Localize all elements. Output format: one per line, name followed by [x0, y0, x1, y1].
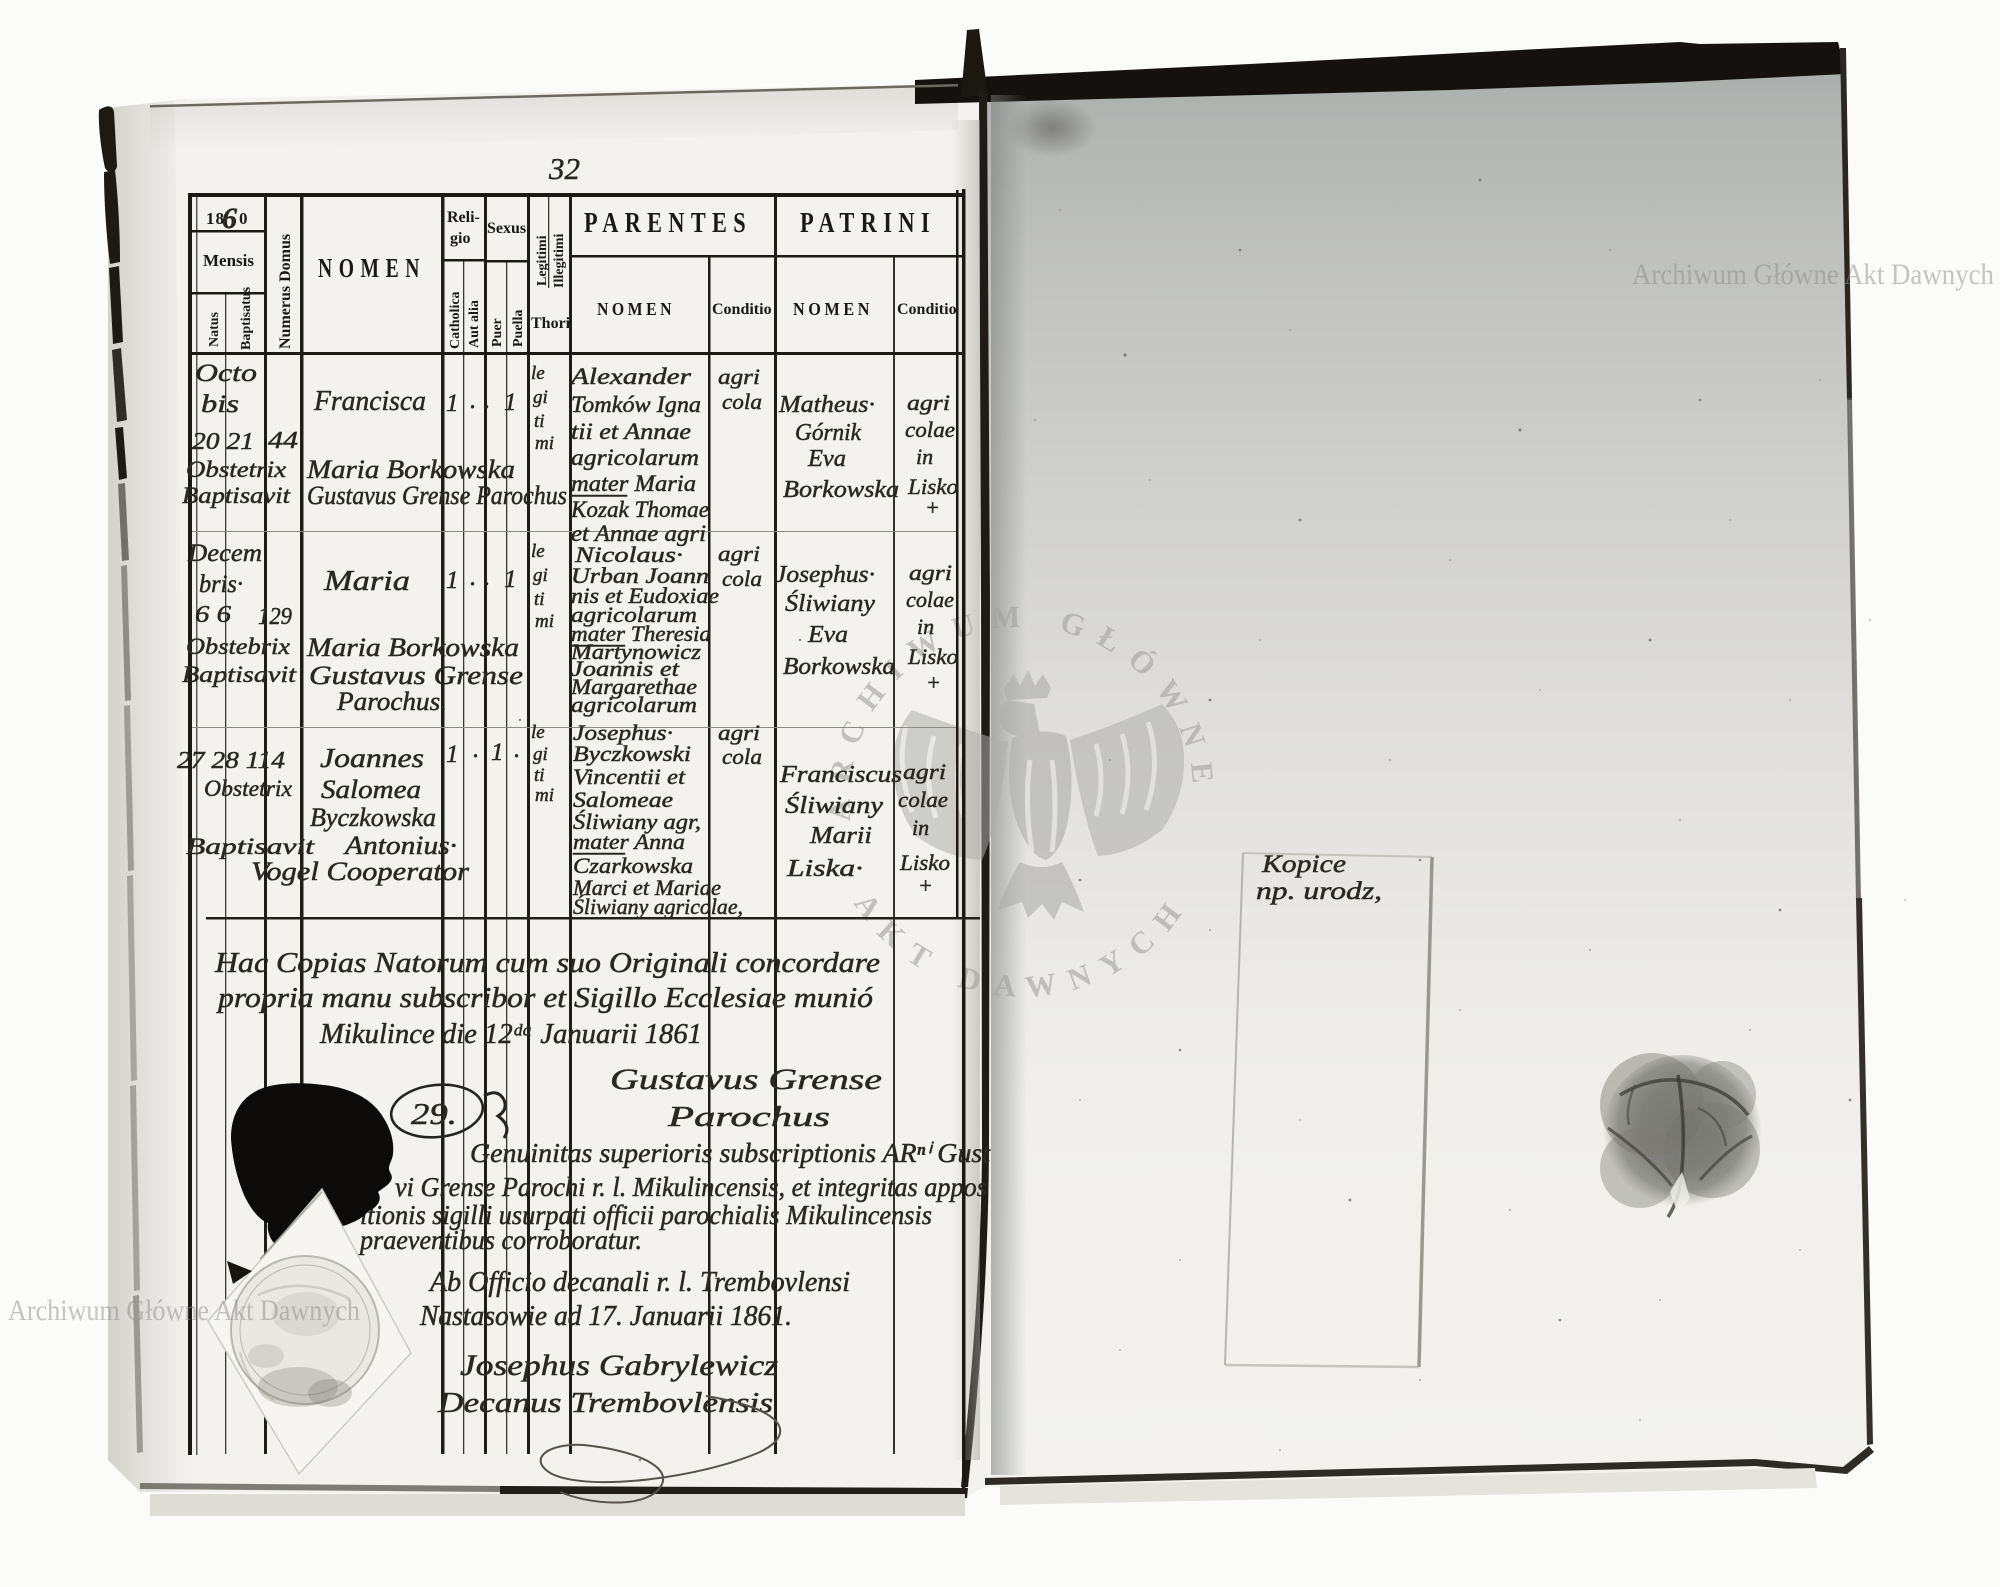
svg-text:Obstebrix: Obstebrix [186, 634, 291, 659]
svg-text:Gustavus Grense Parochus: Gustavus Grense Parochus [307, 481, 567, 510]
svg-text:agri: agri [903, 759, 946, 784]
svg-text:Josephus·: Josephus· [775, 562, 875, 588]
svg-text:Numerus Domus: Numerus Domus [277, 234, 294, 349]
svg-text:32: 32 [548, 151, 580, 186]
svg-text:Sexus: Sexus [487, 220, 526, 237]
svg-text:np. urodz,: np. urodz, [1256, 878, 1382, 905]
svg-text:.: . [470, 564, 476, 591]
svg-text:1: 1 [446, 741, 459, 768]
svg-text:mi: mi [535, 433, 554, 454]
svg-text:129: 129 [258, 604, 292, 630]
svg-text:Legitimi: Legitimi [535, 235, 550, 286]
svg-text:+: + [926, 670, 941, 695]
svg-text:.: . [484, 564, 490, 591]
svg-text:1: 1 [504, 566, 517, 593]
svg-text:colae: colae [898, 787, 948, 812]
svg-text:bis: bis [201, 391, 239, 418]
svg-text:Puella: Puella [511, 310, 526, 347]
svg-text:Obstetrix: Obstetrix [204, 776, 293, 801]
svg-text:Nastasowie ad 17. Januarii 186: Nastasowie ad 17. Januarii 1861. [419, 1301, 792, 1332]
svg-text:agri: agri [907, 390, 950, 415]
svg-text:gio: gio [450, 230, 470, 247]
svg-text:Parochus: Parochus [666, 1102, 830, 1133]
svg-text:0: 0 [239, 209, 248, 228]
svg-text:PARENTES: PARENTES [584, 208, 752, 239]
svg-text:Byczkowska: Byczkowska [310, 803, 436, 832]
svg-text:propria manu subscribor et Sig: propria manu subscribor et Sigillo Eccle… [216, 983, 873, 1014]
svg-text:Alexander: Alexander [568, 364, 692, 389]
svg-text:Maria Borkowska: Maria Borkowska [306, 455, 515, 484]
svg-text:Mikulince die 12ᵈᵃ Januarii 18: Mikulince die 12ᵈᵃ Januarii 1861 [319, 1019, 702, 1050]
svg-text:Puer: Puer [490, 318, 505, 347]
svg-text:Kopice: Kopice [1261, 851, 1346, 878]
svg-text:ti: ti [534, 765, 545, 786]
svg-text:in: in [912, 815, 929, 840]
svg-text:Aut alia: Aut alia [467, 300, 482, 348]
svg-text:Lisko: Lisko [899, 850, 950, 875]
svg-text:44: 44 [268, 428, 298, 454]
svg-text:tii et Annae: tii et Annae [571, 419, 691, 444]
svg-text:ti: ti [534, 411, 545, 432]
svg-text:gi: gi [533, 744, 548, 765]
svg-text:.: . [473, 736, 479, 763]
svg-text:in: in [916, 444, 933, 469]
svg-text:27 28 114: 27 28 114 [177, 748, 285, 774]
svg-text:Marii: Marii [809, 823, 872, 849]
svg-text:Josephus Gabrylewicz: Josephus Gabrylewicz [460, 1349, 778, 1382]
svg-text:Decem: Decem [187, 540, 262, 567]
svg-text:20 21: 20 21 [192, 429, 254, 455]
svg-text:agri: agri [909, 560, 952, 585]
svg-text:mi: mi [535, 785, 554, 806]
svg-text:+: + [918, 873, 933, 898]
svg-text:Eva: Eva [807, 622, 848, 648]
svg-text:Mensis: Mensis [203, 251, 254, 270]
svg-text:29.: 29. [411, 1096, 457, 1131]
svg-text:le: le [531, 363, 545, 384]
svg-text:Illegitimi: Illegitimi [552, 233, 567, 288]
svg-text:Genuinitas superioris subscrip: Genuinitas superioris subscriptionis ARⁿ… [470, 1138, 992, 1168]
svg-text:cola: cola [722, 744, 762, 769]
svg-text:Obstetrix: Obstetrix [186, 457, 287, 482]
svg-text:gi: gi [533, 387, 548, 408]
svg-text:praeventibus corroboratur.: praeventibus corroboratur. [358, 1225, 642, 1255]
svg-text:.: . [484, 387, 490, 414]
svg-text:colae: colae [906, 587, 954, 612]
svg-text:Maria: Maria [323, 565, 410, 597]
svg-text:Byczkowski: Byczkowski [573, 741, 691, 766]
svg-text:PATRINI: PATRINI [800, 208, 936, 239]
svg-text:agricolarum: agricolarum [571, 445, 699, 470]
svg-text:Thori: Thori [531, 315, 571, 332]
svg-text:Baptisavit: Baptisavit [186, 834, 315, 859]
svg-text:Borkowska: Borkowska [783, 654, 895, 680]
svg-text:colae: colae [905, 417, 955, 442]
svg-text:Catholica: Catholica [448, 291, 463, 349]
svg-text:Franciscus: Franciscus [779, 762, 902, 788]
svg-text:Eva: Eva [807, 446, 846, 472]
svg-text:1: 1 [446, 390, 459, 417]
svg-text:Matheus·: Matheus· [778, 392, 875, 418]
svg-text:6 6: 6 6 [195, 602, 231, 628]
svg-text:Decanus Trembovlensis: Decanus Trembovlensis [437, 1387, 773, 1419]
svg-text:le: le [531, 722, 545, 743]
svg-text:Górnik: Górnik [795, 420, 861, 446]
svg-text:le: le [531, 541, 545, 562]
svg-text:NOMEN: NOMEN [597, 299, 675, 319]
svg-text:+: + [925, 495, 940, 520]
svg-text:Maria Borkowska: Maria Borkowska [306, 633, 519, 662]
svg-text:ti: ti [534, 589, 545, 610]
svg-text:Octo: Octo [195, 360, 257, 387]
svg-text:NOMEN: NOMEN [318, 253, 426, 283]
svg-text:6: 6 [222, 202, 237, 235]
svg-text:vi Grense Parochi r. l. Mikuli: vi Grense Parochi r. l. Mikulincensis, e… [395, 1172, 987, 1202]
svg-text:Lisko: Lisko [907, 644, 958, 669]
svg-text:mater Anna: mater Anna [573, 829, 685, 854]
svg-text:Śliwiany: Śliwiany [785, 792, 883, 819]
svg-text:Kozak Thomae: Kozak Thomae [570, 497, 709, 522]
svg-text:Joannes: Joannes [320, 743, 424, 773]
svg-text:Śliwiany: Śliwiany [785, 590, 875, 617]
svg-text:gi: gi [533, 565, 548, 586]
svg-text:Conditio: Conditio [897, 301, 957, 318]
svg-text:Conditio: Conditio [712, 301, 772, 318]
svg-text:Reli-: Reli- [447, 209, 480, 226]
svg-text:Baptisavit: Baptisavit [182, 662, 297, 687]
svg-text:bris·: bris· [199, 571, 243, 598]
svg-text:Salomea: Salomea [321, 775, 421, 804]
svg-text:Ab Officio decanali r. l. Trem: Ab Officio decanali r. l. Trembovlensi [428, 1267, 850, 1298]
svg-text:Śliwiany agricolae,: Śliwiany agricolae, [573, 894, 743, 919]
svg-text:cola: cola [722, 389, 762, 414]
svg-text:Vincentii et: Vincentii et [573, 764, 686, 789]
svg-text:agri: agri [718, 541, 760, 566]
svg-text:cola: cola [722, 566, 762, 591]
svg-text:.: . [470, 387, 476, 414]
svg-text:Archiwum Główne Akt Dawnych: Archiwum Główne Akt Dawnych [8, 1294, 360, 1327]
svg-text:Antonius·: Antonius· [343, 831, 457, 860]
svg-text:Liska·: Liska· [786, 856, 863, 882]
svg-text:Gustavus Grense: Gustavus Grense [610, 1063, 882, 1096]
svg-text:agri: agri [718, 720, 760, 745]
svg-text:mater Maria: mater Maria [571, 471, 696, 496]
svg-text:1: 1 [491, 739, 504, 766]
svg-text:in: in [917, 614, 934, 639]
svg-text:NOMEN: NOMEN [793, 299, 873, 319]
svg-text:Vogel Cooperator: Vogel Cooperator [251, 857, 470, 886]
svg-text:Baptisavit: Baptisavit [182, 483, 291, 508]
svg-text:Natus: Natus [207, 311, 222, 347]
svg-text:.: . [514, 736, 520, 763]
svg-text:Gustavus Grense: Gustavus Grense [309, 661, 523, 690]
svg-text:Parochus.: Parochus. [336, 687, 447, 716]
svg-text:Archiwum Główne Akt Dawnych: Archiwum Główne Akt Dawnych [1632, 258, 1994, 291]
svg-text:agri: agri [718, 364, 760, 389]
svg-text:1: 1 [504, 389, 517, 416]
svg-text:Tomków Igna: Tomków Igna [571, 392, 701, 417]
svg-text:Francisca: Francisca [313, 385, 426, 417]
svg-text:Hac Copias Natorum cum suo Ori: Hac Copias Natorum cum suo Originali con… [214, 948, 880, 979]
svg-text:mi: mi [535, 611, 554, 632]
svg-text:Baptisatus: Baptisatus [239, 286, 254, 350]
svg-text:1: 1 [446, 567, 459, 594]
svg-text:agricolarum: agricolarum [571, 692, 697, 717]
svg-text:Borkowska: Borkowska [783, 477, 899, 503]
